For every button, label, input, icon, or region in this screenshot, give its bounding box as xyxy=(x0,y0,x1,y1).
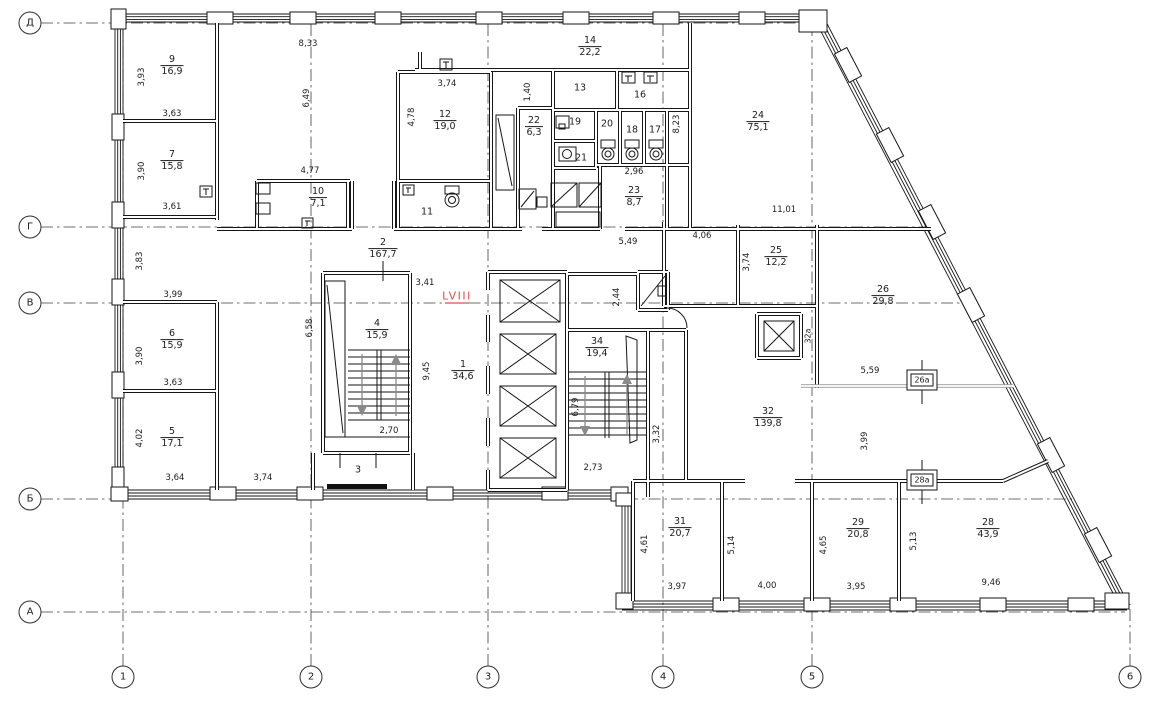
fixtures xyxy=(200,59,687,328)
stair-arrows xyxy=(357,354,632,436)
wall-piers xyxy=(111,9,1129,611)
vent-boxes xyxy=(907,360,937,504)
stairs xyxy=(325,281,646,468)
floor-plan: 916,9715,8615,9517,1107,11219,01422,2226… xyxy=(0,0,1166,707)
threshold xyxy=(327,484,387,489)
interior-walls xyxy=(123,23,1048,601)
floorplan-drawing xyxy=(0,0,1166,707)
